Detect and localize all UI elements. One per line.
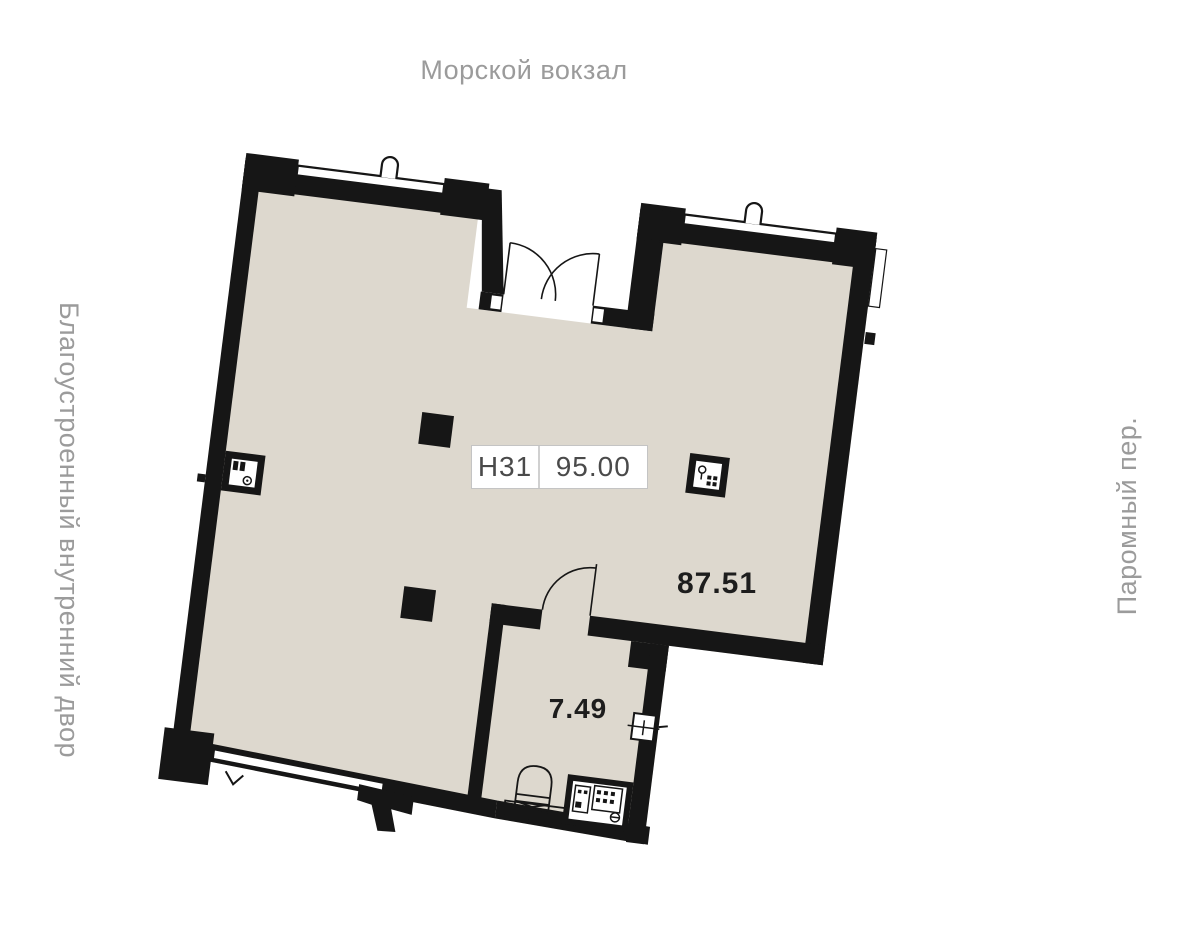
electrical-shaft-icon [221,451,266,496]
area-label-storage-room: 7.49 [549,693,608,724]
column-icon [418,412,454,448]
vent-icon [380,156,399,179]
vent-icon [744,202,763,225]
column-icon [400,586,436,622]
unit-number: Н31 [472,451,538,483]
plumbing-shaft-icon [562,774,634,832]
street-label-top: Морской вокзал [420,55,627,85]
street-label-right: Паромный пер. [1112,417,1142,616]
unit-badge: Н31 95.00 [471,445,648,489]
facade-tick [224,771,243,785]
floor-plan-page: Морской вокзал Благоустроенный внутренни… [0,0,1200,926]
unit-total-area: 95.00 [540,451,648,483]
ventilation-shaft-icon [685,453,730,498]
floor-plan [155,122,892,885]
street-label-left: Благоустроенный внутренний двор [54,302,84,758]
area-label-main-room: 87.51 [677,567,757,600]
